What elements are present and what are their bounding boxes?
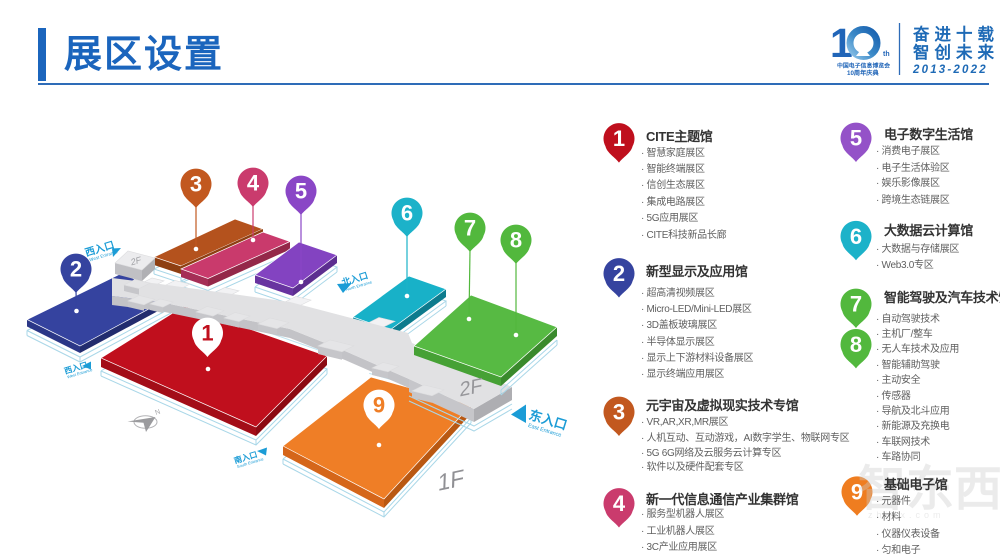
svg-text:1F: 1F (437, 464, 464, 496)
svg-text:奋进十载: 奋进十载 (912, 24, 999, 44)
svg-text:8: 8 (510, 228, 522, 253)
svg-text:5: 5 (850, 126, 862, 151)
svg-text:3: 3 (613, 400, 625, 425)
svg-text:8: 8 (850, 332, 862, 357)
svg-text:2: 2 (70, 257, 82, 282)
svg-text:10周年庆典: 10周年庆典 (847, 69, 879, 77)
svg-text:9: 9 (373, 393, 385, 418)
svg-text:7: 7 (850, 292, 862, 317)
svg-text:中国电子信息博览会: 中国电子信息博览会 (837, 62, 890, 70)
svg-text:6: 6 (850, 224, 862, 249)
svg-text:3: 3 (190, 172, 202, 197)
svg-text:智创未来: 智创未来 (913, 42, 999, 62)
svg-text:4: 4 (613, 491, 626, 516)
svg-text:th: th (883, 51, 890, 58)
svg-text:4: 4 (247, 171, 260, 196)
svg-text:N: N (154, 409, 161, 417)
svg-text:5: 5 (295, 179, 307, 204)
svg-text:7: 7 (464, 216, 476, 241)
svg-text:2013-2022: 2013-2022 (912, 64, 988, 76)
svg-text:6: 6 (401, 201, 413, 226)
svg-text:2: 2 (613, 261, 625, 286)
svg-text:1: 1 (613, 126, 625, 151)
svg-text:1: 1 (201, 321, 213, 346)
